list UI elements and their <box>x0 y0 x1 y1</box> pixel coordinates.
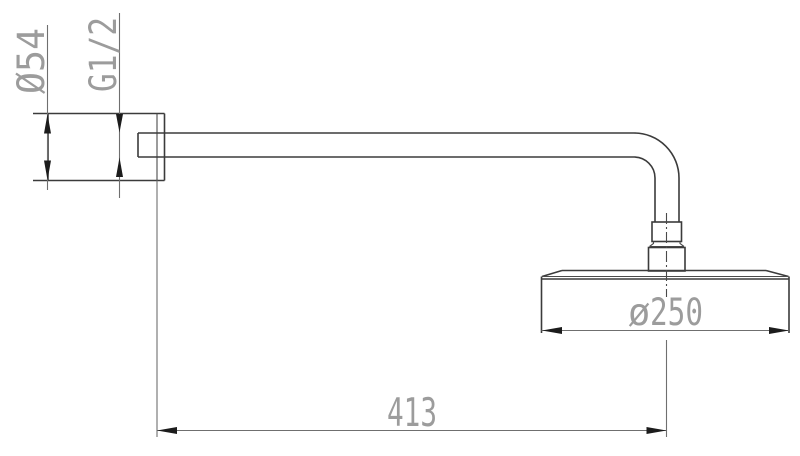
arrowhead-up-icon <box>44 114 51 134</box>
flange-diameter-label: Ø54 <box>10 28 53 94</box>
dim-thread-size: G1/2 <box>82 13 125 198</box>
head-diameter-symbol: ø <box>628 291 650 334</box>
technical-drawing-canvas: Ø54 G1/2 ø 250 413 <box>0 0 800 456</box>
arrowhead-left-icon <box>542 327 562 334</box>
dim-arm-length: 413 <box>157 181 667 438</box>
arrowhead-right-icon <box>647 427 667 434</box>
arrowhead-left-icon <box>157 427 177 434</box>
arrowhead-up-icon <box>116 158 123 178</box>
dim-head-diameter: ø 250 <box>542 291 790 334</box>
thread-size-label: G1/2 <box>82 17 125 92</box>
head-diameter-value: 250 <box>650 291 703 334</box>
dim-flange-diameter: Ø54 <box>10 25 53 190</box>
arrowhead-down-icon <box>116 114 123 133</box>
wall-flange <box>33 114 165 181</box>
arrowhead-down-icon <box>44 161 51 181</box>
arm-length-label: 413 <box>387 391 437 436</box>
arrowhead-right-icon <box>769 327 789 334</box>
shower-arm-drawing: Ø54 G1/2 ø 250 413 <box>0 0 800 456</box>
shower-arm <box>138 133 679 222</box>
